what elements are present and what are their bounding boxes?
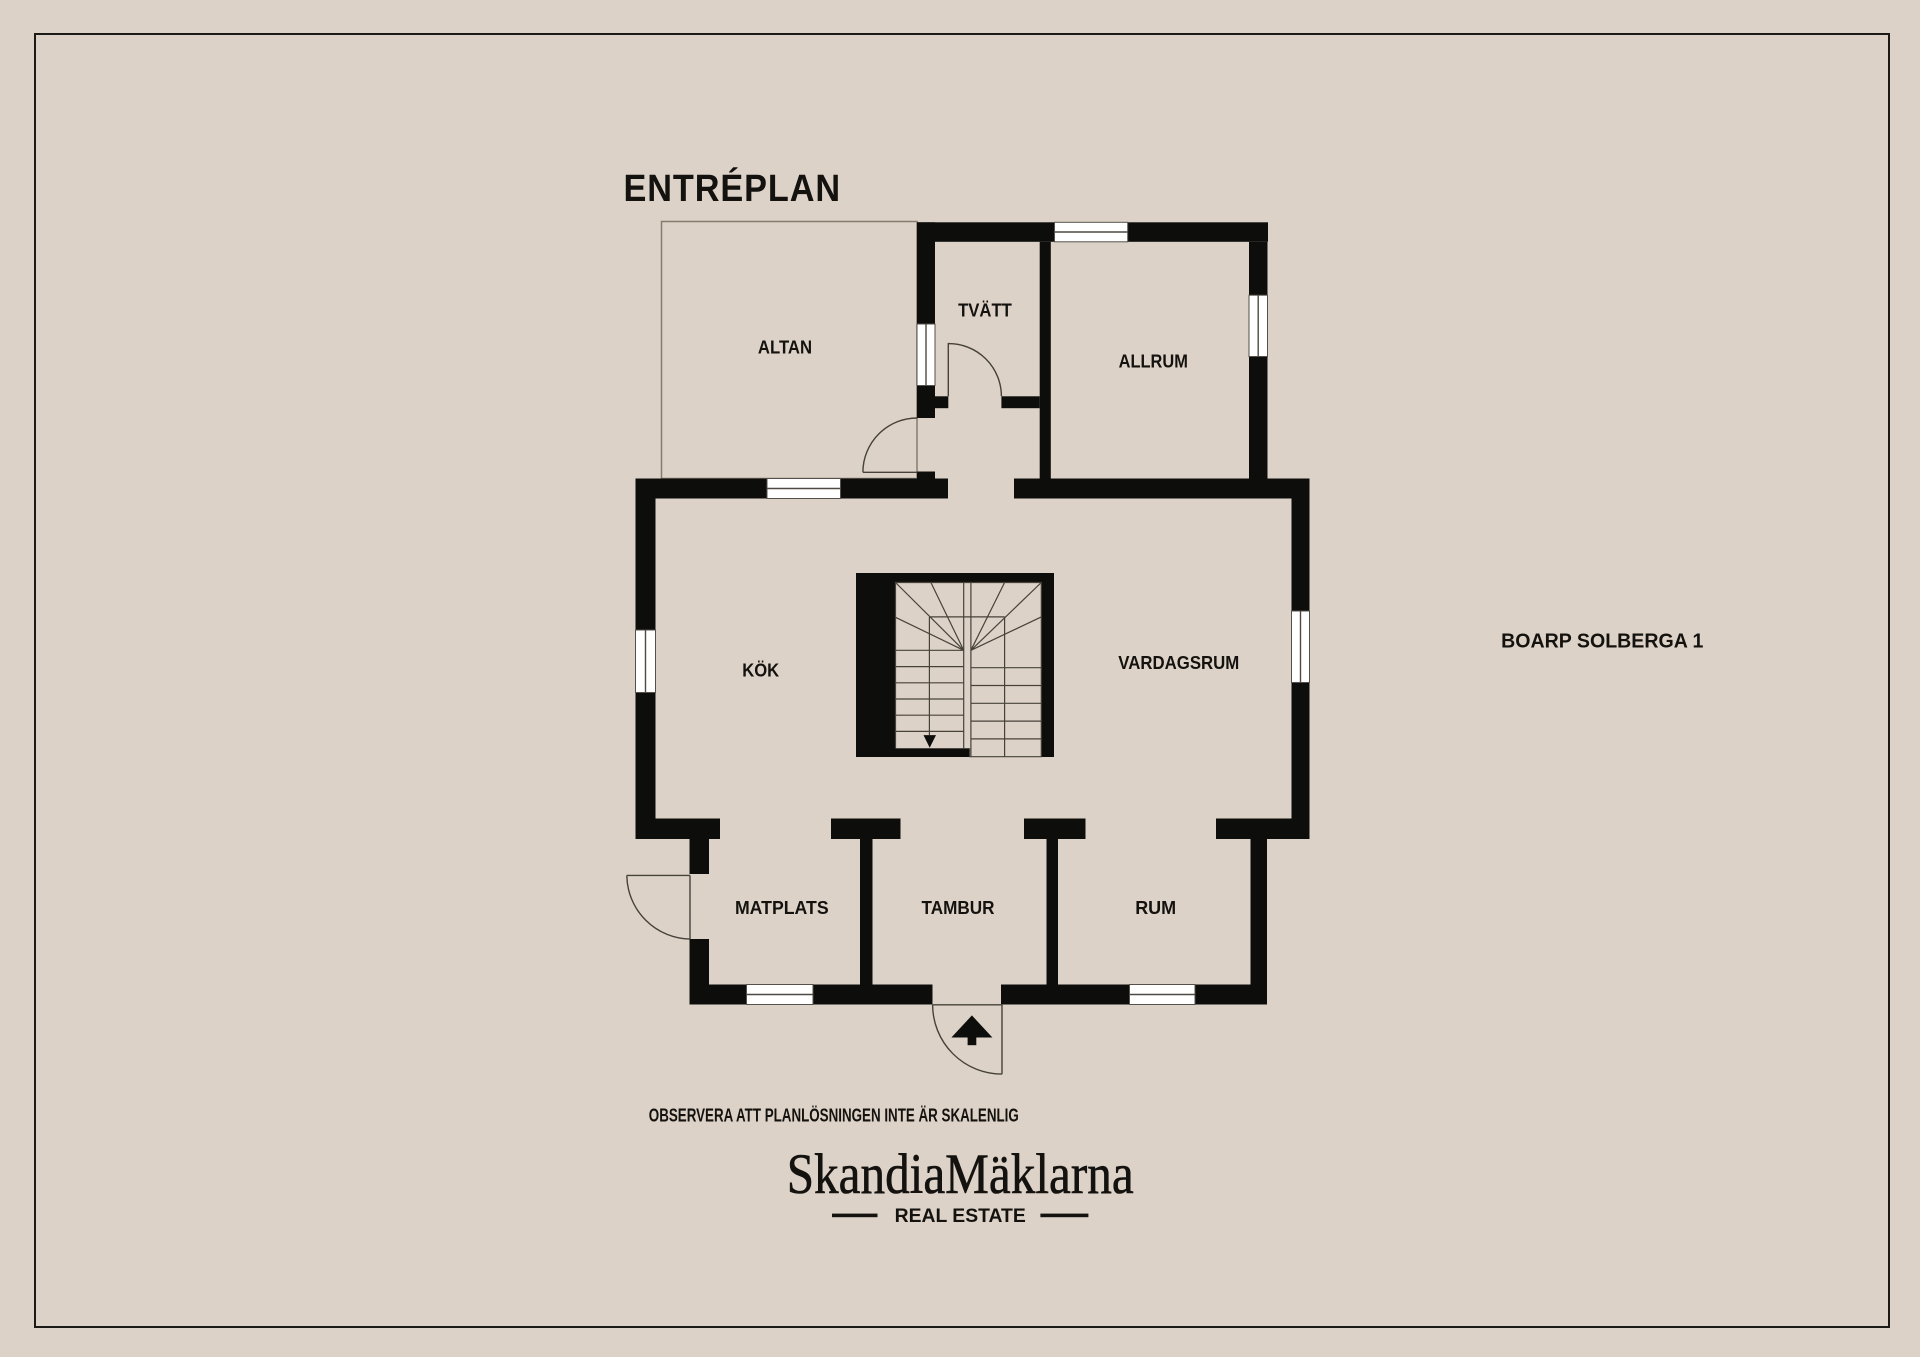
svg-text:ENTRÉPLAN: ENTRÉPLAN (624, 166, 842, 210)
svg-text:BOARP SOLBERGA 1: BOARP SOLBERGA 1 (1501, 631, 1703, 653)
svg-text:RUM: RUM (1135, 898, 1176, 918)
svg-text:ALTAN: ALTAN (758, 337, 812, 357)
svg-text:TVÄTT: TVÄTT (958, 300, 1012, 320)
svg-text:SkandiaMäklarna: SkandiaMäklarna (787, 1143, 1134, 1206)
svg-text:OBSERVERA ATT PLANLÖSNINGEN IN: OBSERVERA ATT PLANLÖSNINGEN INTE ÄR SKAL… (649, 1105, 1019, 1125)
svg-text:REAL ESTATE: REAL ESTATE (895, 1206, 1026, 1227)
svg-text:MATPLATS: MATPLATS (735, 898, 829, 918)
svg-text:ALLRUM: ALLRUM (1119, 352, 1188, 372)
svg-text:TAMBUR: TAMBUR (922, 898, 995, 918)
svg-text:KÖK: KÖK (742, 660, 779, 680)
svg-text:VARDAGSRUM: VARDAGSRUM (1118, 653, 1239, 673)
